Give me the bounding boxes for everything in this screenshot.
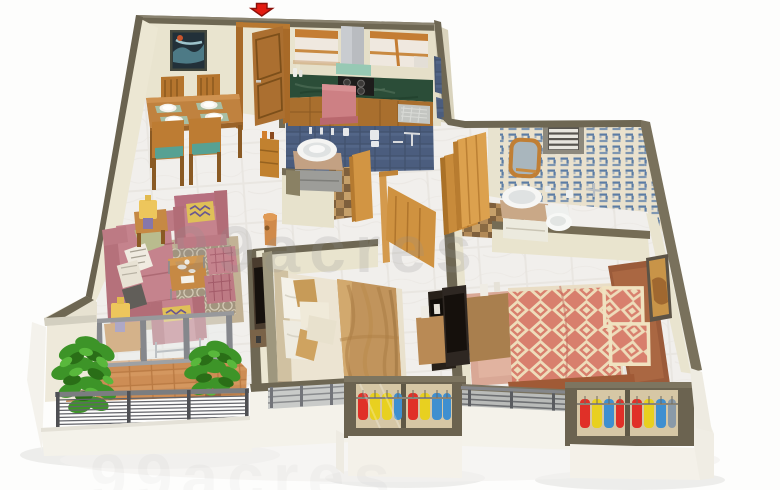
svg-text:99acres: 99acres (172, 212, 481, 286)
svg-text:99acres: 99acres (90, 440, 399, 490)
